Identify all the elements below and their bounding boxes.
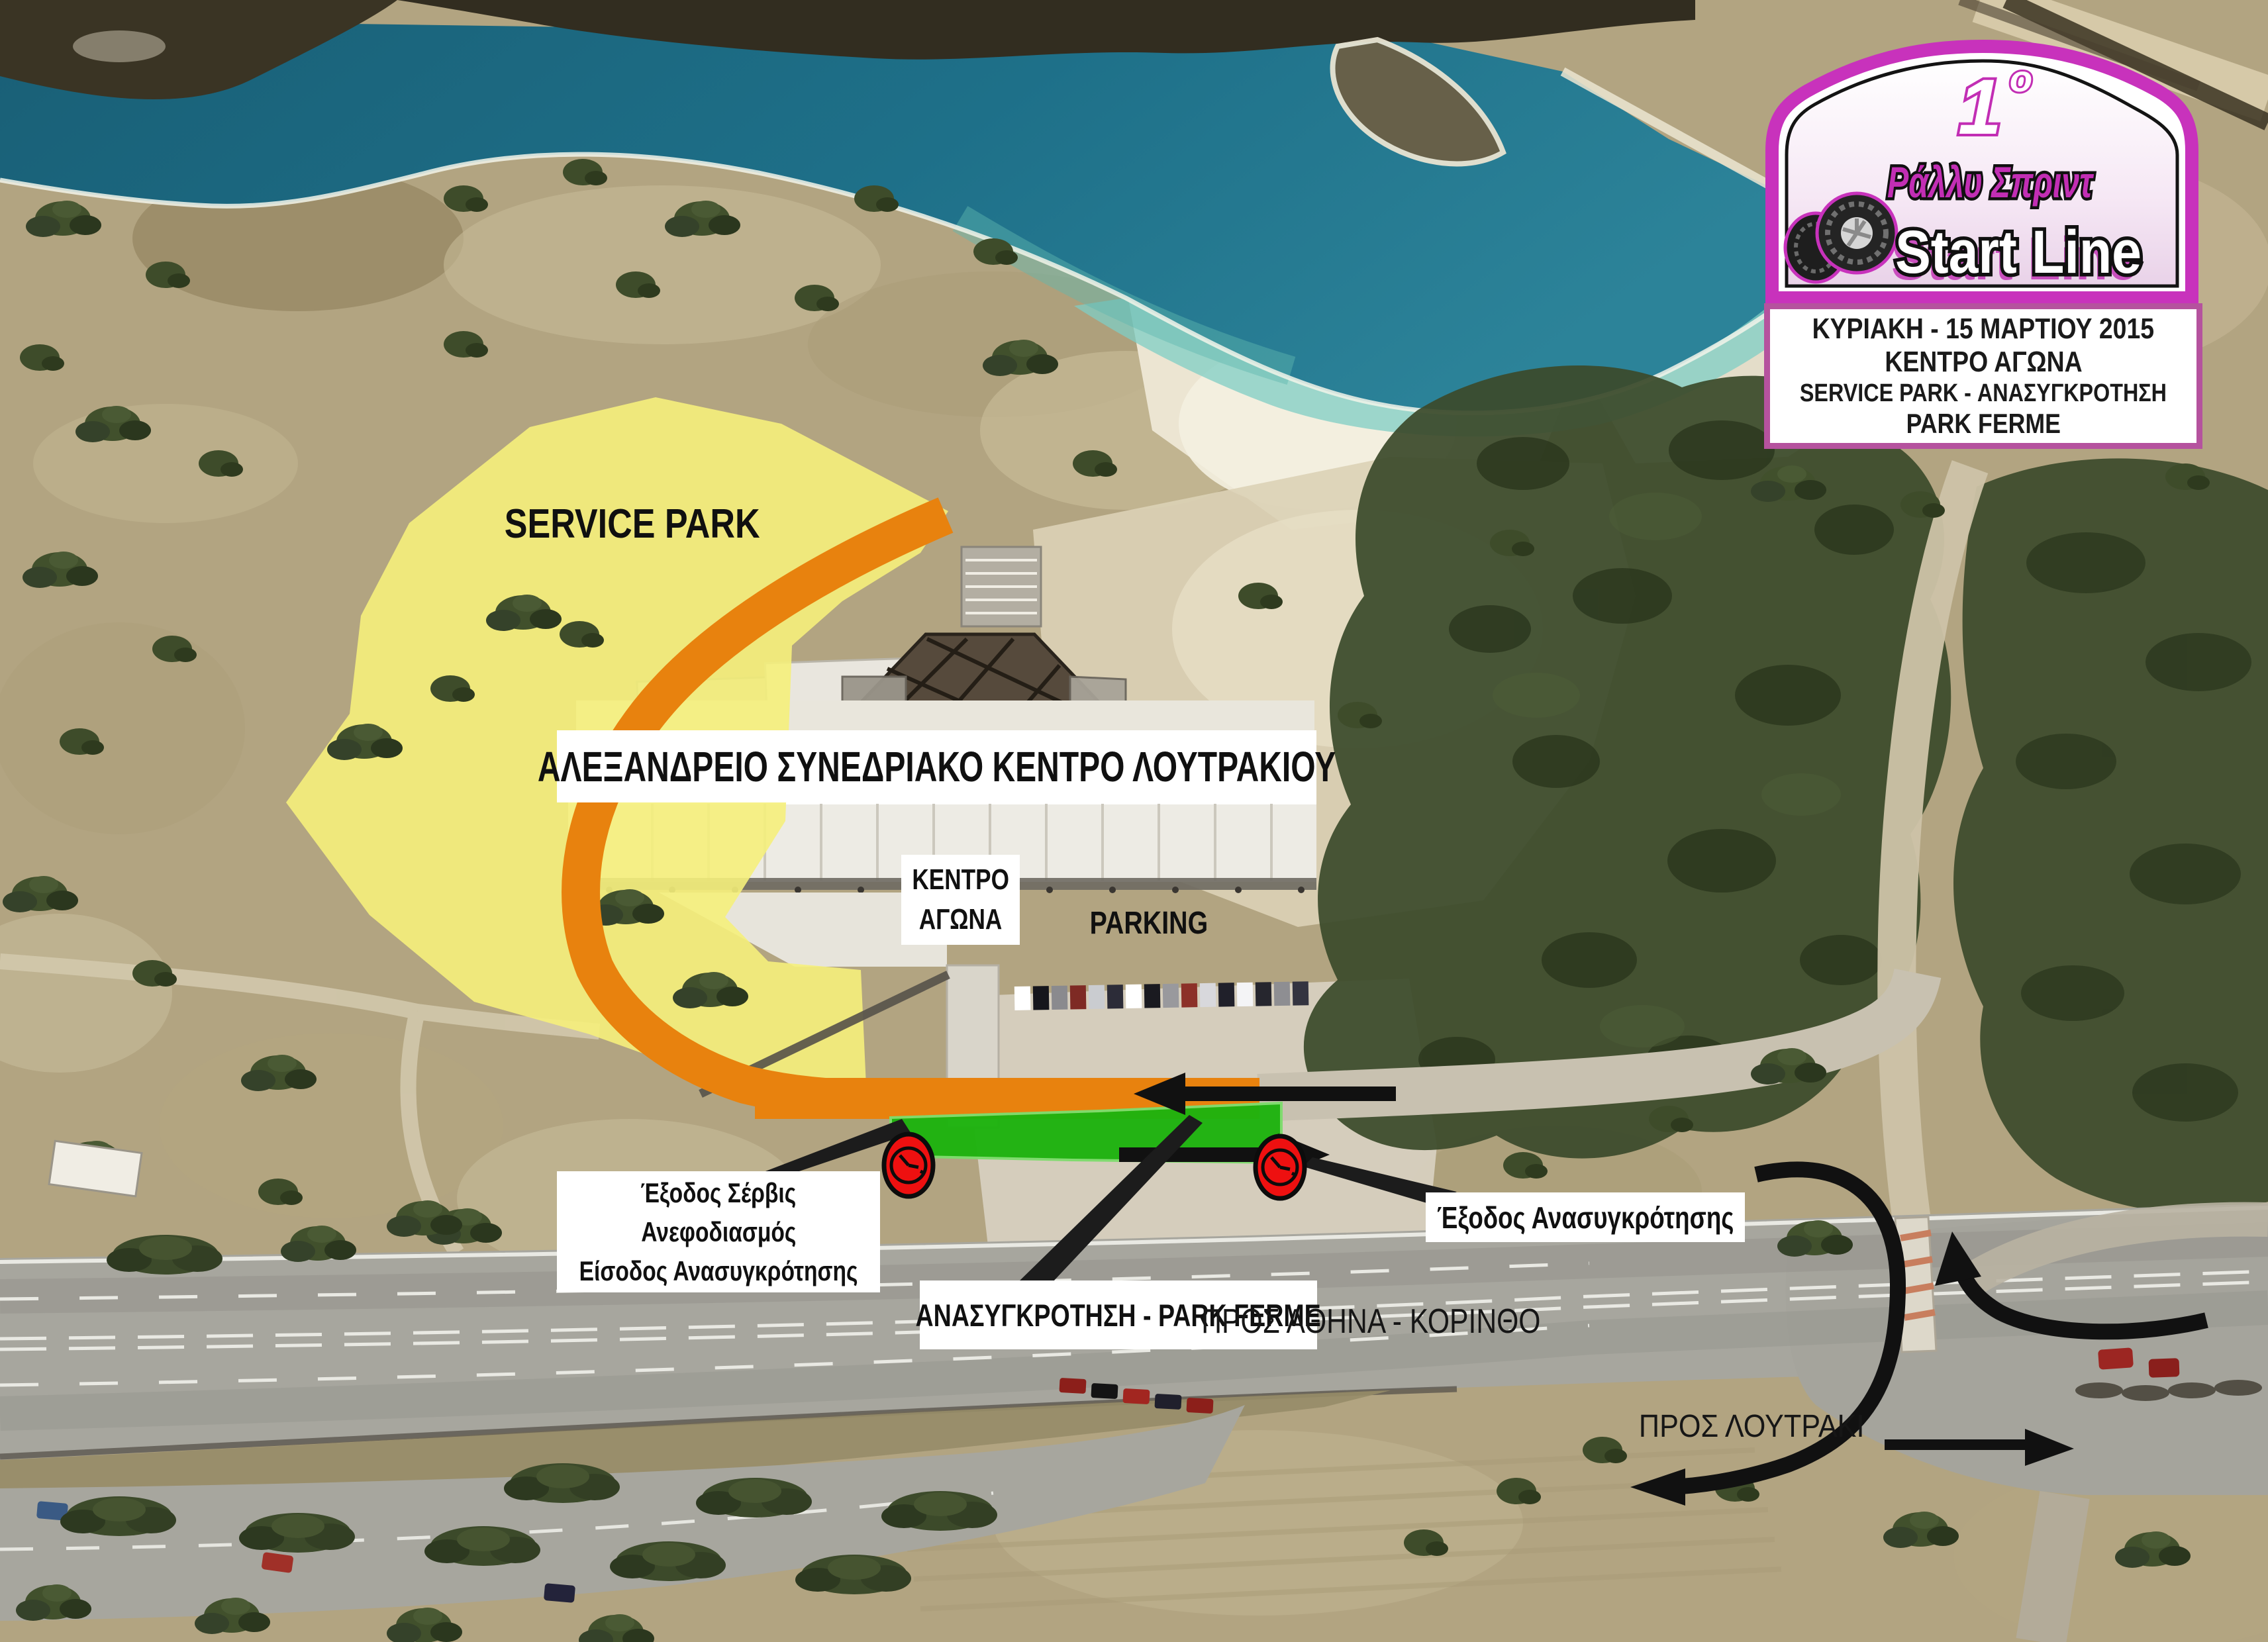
regroup-exit-label: Έξοδος Ανασυγκρότησης: [1426, 1192, 1745, 1242]
event-info-box: ΚΥΡΙΑΚΗ - 15 ΜΑΡΤΙΟΥ 2015 ΚΕΝΤΡΟ ΑΓΩΝΑ S…: [1764, 303, 2202, 449]
race-hq-label: ΚΕΝΤΡΟ ΑΓΩΝΑ: [901, 855, 1020, 945]
event-areas: SERVICE PARK - ΑΝΑΣΥΓΚΡΟΤΗΣΗ: [1800, 379, 2167, 408]
event-date: ΚΥΡΙΑΚΗ - 15 ΜΑΡΤΙΟΥ 2015: [1812, 313, 2154, 346]
arrow-loutraki-shaft: [1885, 1439, 2025, 1450]
time-control-clock-icon: [884, 1134, 933, 1196]
rally-plate: 1 ο Ράλλυ Σπριντ Start Line Start Line: [1761, 40, 2202, 303]
convention-center-label: ΑΛΕΞΑΝΔΡΕΙΟ ΣΥΝΕΔΡΙΑΚΟ ΚΕΝΤΡΟ ΛΟΥΤΡΑΚΙΟΥ: [557, 730, 1316, 802]
to-loutraki-label: ΠΡΟΣ ΛΟΥΤΡΑΚΙ: [1626, 1405, 1877, 1447]
to-athens-korinthos-label: ΠΡΟΣ ΑΘΗΝΑ - ΚΟΡΙΝΘΟ: [1185, 1300, 1556, 1343]
plate-edition-suffix: ο: [2010, 58, 2032, 99]
rally-service-park-map: SERVICE PARK ΑΛΕΞΑΝΔΡΕΙΟ ΣΥΝΕΔΡΙΑΚΟ ΚΕΝΤ…: [0, 0, 2268, 1642]
rally-plate-graphic: 1 ο Ράλλυ Σπριντ Start Line Start Line: [1761, 40, 2202, 303]
arrow-route-west-shaft: [1185, 1087, 1396, 1101]
service-exit-label: Έξοδος Σέρβις Ανεφοδιασμός Είσοδος Ανασυ…: [557, 1171, 880, 1292]
event-parc-ferme: PARK FERME: [1906, 408, 2060, 440]
plate-series-title: Ράλλυ Σπριντ: [1887, 158, 2094, 207]
plate-edition-number: 1: [1958, 64, 2002, 151]
parking-label: PARKING: [1060, 902, 1238, 944]
event-hq: ΚΕΝΤΡΟ ΑΓΩΝΑ: [1885, 346, 2082, 379]
service-park-label: SERVICE PARK: [437, 487, 828, 560]
plate-name: Start Line: [1895, 218, 2142, 286]
time-control-clock-icon: [1256, 1136, 1305, 1198]
